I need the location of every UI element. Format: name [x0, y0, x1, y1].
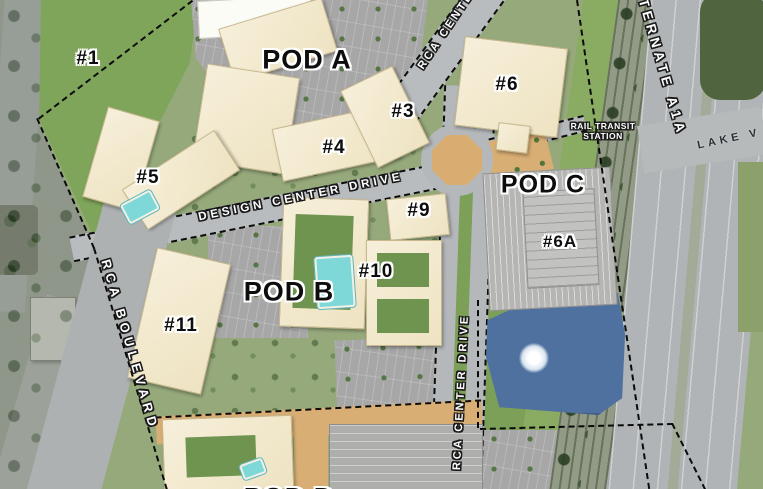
label-pod-b: POD B: [244, 277, 335, 308]
paseo-pod-b: [294, 418, 328, 489]
building-10: [366, 240, 442, 346]
label-building-6: #6: [495, 74, 518, 96]
label-building-4: #4: [322, 137, 345, 159]
site-plan-map: POD A POD B POD C POD D #1 #3 #4 #5 #6 #…: [0, 0, 763, 489]
label-pod-d: POD D: [244, 483, 335, 489]
label-building-10: #10: [359, 261, 394, 283]
label-rail-transit-line1: RAIL TRANSIT: [571, 121, 636, 131]
courtyard: [377, 299, 429, 333]
building-6-annex: [495, 122, 530, 154]
label-rail-transit-station: RAIL TRANSIT STATION: [571, 121, 636, 141]
label-rail-transit-line2: STATION: [571, 131, 636, 141]
label-building-11: #11: [164, 315, 198, 337]
label-building-6a: #6A: [543, 232, 577, 252]
tree-cluster-northeast: [700, 0, 763, 100]
label-pod-a: POD A: [262, 45, 352, 76]
label-building-5: #5: [136, 167, 159, 189]
label-building-3: #3: [391, 101, 414, 123]
roundabout-plaza: [432, 135, 482, 185]
boundary-line-lake-west: [477, 300, 479, 428]
fountain-icon: [519, 343, 549, 373]
label-pod-c: POD C: [501, 171, 585, 200]
grass-east-verge: [738, 162, 763, 332]
label-building-1: #1: [76, 48, 99, 70]
label-building-9: #9: [407, 200, 430, 222]
building-south-west: [162, 415, 295, 489]
